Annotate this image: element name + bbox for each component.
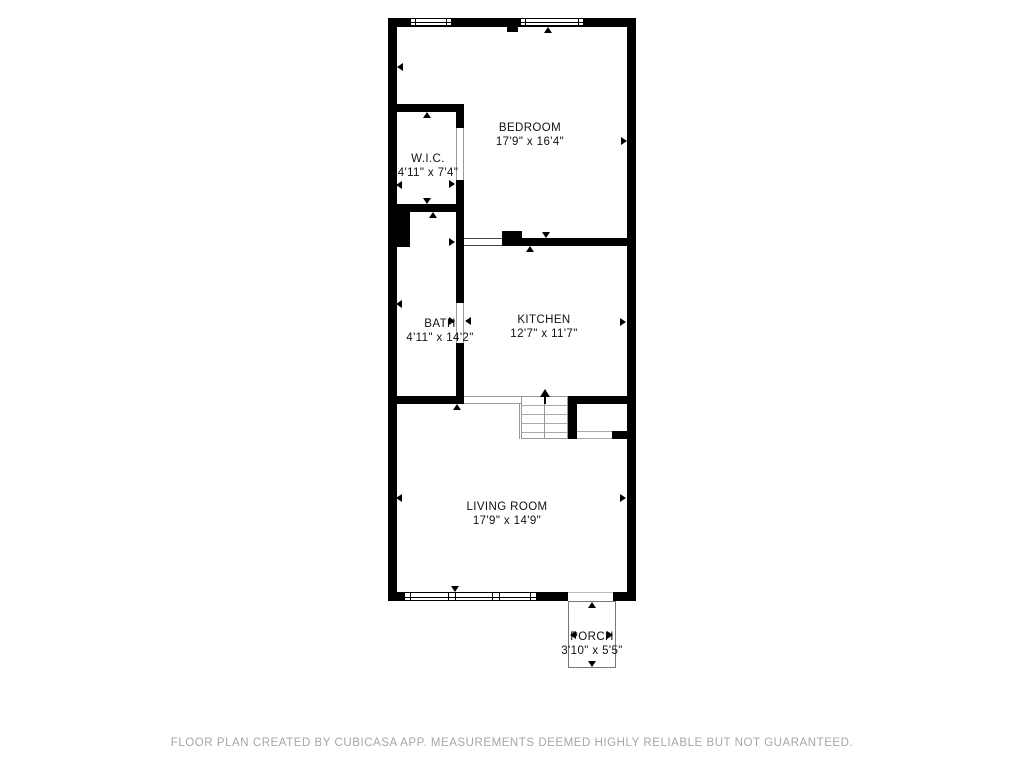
room-label-bedroom: BEDROOM 17'9" x 16'4" — [496, 121, 564, 149]
window-pane-line — [411, 22, 451, 23]
room-label-kitchen: KITCHEN 12'7" x 11'7" — [510, 313, 577, 341]
window-endcap — [415, 19, 416, 25]
measurement-tick — [453, 404, 461, 410]
room-name: PORCH — [561, 630, 622, 644]
stair-up-arrow-icon — [540, 389, 550, 397]
wic-wall-top — [388, 104, 464, 112]
room-label-bath: BATH 4'11" x 14'2" — [406, 317, 473, 345]
room-dimensions: 3'10" x 5'5" — [561, 644, 622, 658]
top-wall-pilaster — [507, 26, 518, 32]
corridor-opening — [577, 431, 612, 439]
room-dimensions: 4'11" x 14'2" — [406, 331, 473, 345]
window-endcap — [410, 593, 411, 600]
room-dimensions: 12'7" x 11'7" — [510, 327, 577, 341]
exterior-wall-right — [627, 18, 636, 601]
corridor-wall-stub — [612, 431, 628, 439]
measurement-tick — [429, 212, 437, 218]
wall-mass-block — [388, 212, 410, 247]
stair-up-arrow-stem — [544, 397, 546, 404]
stair-void-side-line — [519, 404, 520, 439]
bedroom-window-left — [410, 18, 452, 26]
room-dimensions: 17'9" x 16'4" — [496, 135, 564, 149]
kitchen-wall-bottom — [568, 396, 628, 404]
window-mullion — [492, 593, 493, 600]
measurement-tick — [588, 602, 596, 608]
room-name: BATH — [406, 317, 473, 331]
measurement-tick — [396, 181, 402, 189]
bedroom-wall-pilaster — [502, 231, 522, 238]
measurement-tick — [397, 63, 403, 71]
window-endcap — [530, 593, 531, 600]
room-name: BEDROOM — [496, 121, 564, 135]
room-name: W.I.C. — [398, 152, 459, 166]
stair-void-edge — [464, 396, 521, 404]
living-room-window-band — [404, 592, 537, 601]
measurement-tick — [588, 661, 596, 667]
measurement-tick — [396, 494, 402, 502]
window-endcap — [525, 19, 526, 25]
measurement-tick — [542, 232, 550, 238]
measurement-tick — [621, 137, 627, 145]
measurement-tick — [620, 318, 626, 326]
bedroom-window-right — [520, 18, 584, 26]
window-mullion — [455, 593, 456, 600]
room-name: LIVING ROOM — [466, 500, 547, 514]
bath-wall-right-upper — [456, 212, 464, 303]
window-endcap — [446, 19, 447, 25]
measurement-tick — [544, 27, 552, 33]
corner-block-bottom-right — [613, 592, 636, 601]
room-name: KITCHEN — [510, 313, 577, 327]
window-pane-line — [521, 22, 583, 23]
room-label-porch: PORCH 3'10" x 5'5" — [561, 630, 622, 658]
room-dimensions: 4'11" x 7'4" — [398, 166, 459, 180]
bath-wall-right-lower — [456, 343, 464, 404]
measurement-tick — [449, 180, 455, 188]
footer-disclaimer: FLOOR PLAN CREATED BY CUBICASA APP. MEAS… — [0, 737, 1024, 749]
window-pane-line — [405, 597, 536, 598]
floor-plan-page: BEDROOM 17'9" x 16'4" W.I.C. 4'11" x 7'4… — [0, 0, 1024, 768]
bedroom-kitchen-wall — [502, 238, 628, 246]
measurement-tick — [423, 198, 431, 204]
window-mullion — [448, 593, 449, 600]
porch-door-opening — [568, 592, 613, 601]
window-mullion — [499, 593, 500, 600]
measurement-tick — [620, 494, 626, 502]
bedroom-door-opening — [464, 238, 502, 246]
room-dimensions: 17'9" x 14'9" — [466, 514, 547, 528]
wic-wall-right-upper — [456, 104, 464, 128]
window-endcap — [578, 19, 579, 25]
room-label-living-room: LIVING ROOM 17'9" x 14'9" — [466, 500, 547, 528]
wic-wall-bottom — [388, 204, 464, 212]
measurement-tick — [526, 246, 534, 252]
measurement-tick — [423, 112, 431, 118]
measurement-tick — [396, 300, 402, 308]
room-label-wic: W.I.C. 4'11" x 7'4" — [398, 152, 459, 180]
measurement-tick — [449, 238, 455, 246]
bath-wall-bottom — [388, 396, 464, 404]
measurement-tick — [451, 586, 459, 592]
